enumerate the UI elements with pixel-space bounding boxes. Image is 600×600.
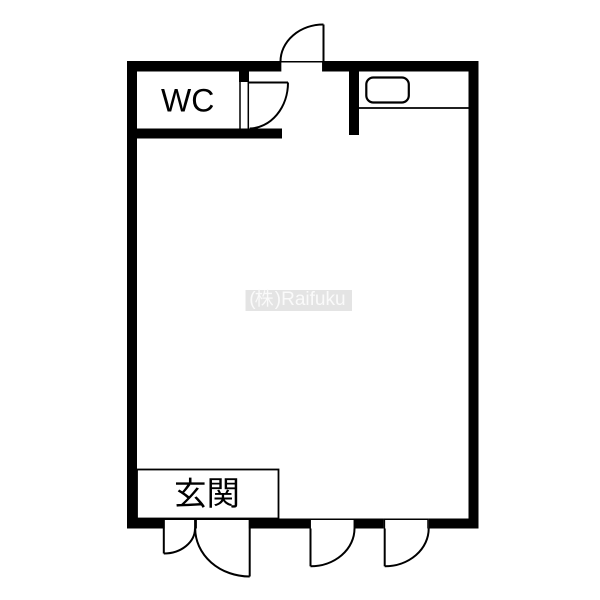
svg-text:)Raifuku: )Raifuku [275, 289, 346, 310]
svg-text:WC: WC [161, 83, 214, 119]
svg-text:(: ( [249, 289, 256, 310]
